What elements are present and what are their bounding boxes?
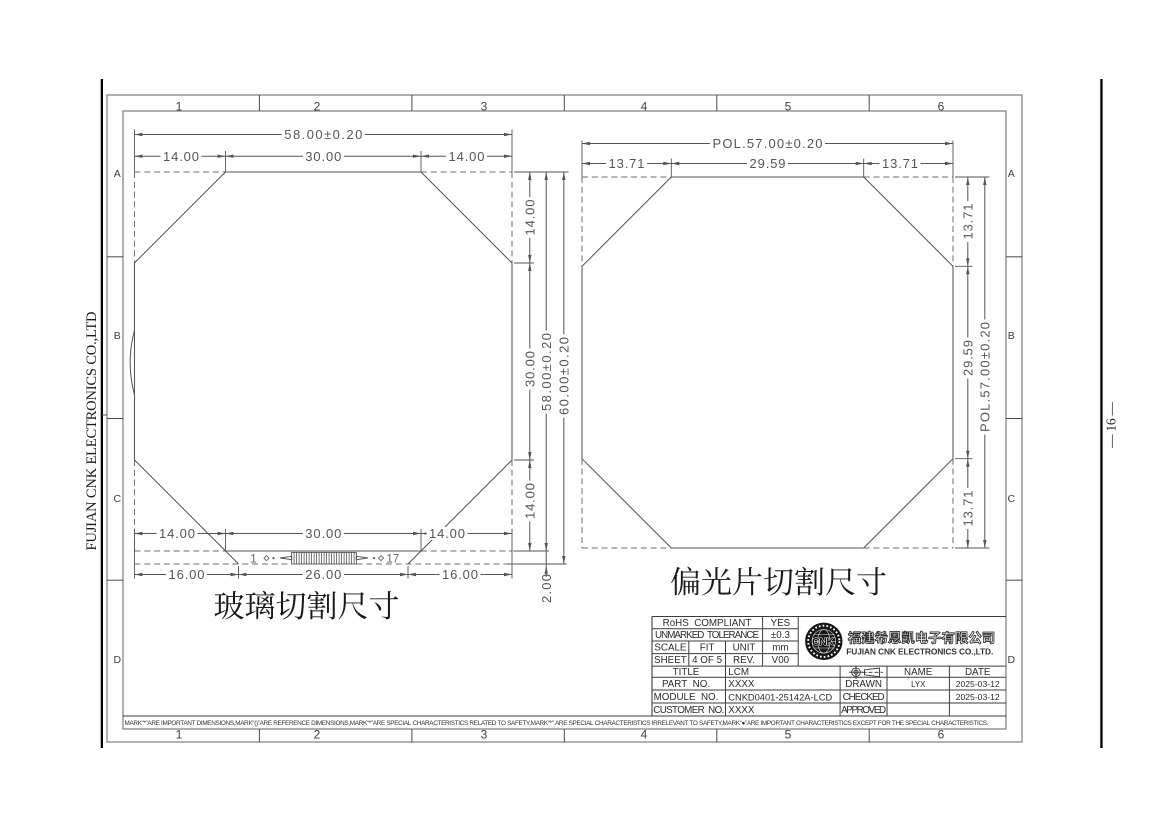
svg-text:FIT: FIT (700, 643, 715, 654)
svg-text:UNIT: UNIT (733, 643, 756, 654)
svg-text:LCM: LCM (728, 667, 749, 678)
svg-text:SCALE: SCALE (654, 643, 687, 654)
svg-text:29.59: 29.59 (750, 156, 786, 171)
svg-text:DRAWN: DRAWN (845, 679, 882, 690)
svg-text:CUSTOMER NO.: CUSTOMER NO. (653, 705, 724, 716)
svg-text:14.00: 14.00 (449, 149, 485, 164)
svg-text:5: 5 (785, 99, 792, 113)
svg-text:FUJIAN CNK ELECTRONICS CO.,LTD: FUJIAN CNK ELECTRONICS CO.,LTD. (846, 646, 993, 656)
svg-text:2025-03-12: 2025-03-12 (956, 692, 1000, 702)
svg-text:NAME: NAME (904, 667, 933, 678)
svg-text:16.00: 16.00 (442, 567, 478, 582)
svg-text:1: 1 (176, 99, 183, 113)
svg-text:D: D (1008, 654, 1016, 666)
svg-text:5: 5 (785, 728, 792, 742)
svg-text:mm: mm (772, 643, 788, 654)
svg-text:CNK: CNK (812, 636, 834, 648)
svg-text:XXXX: XXXX (728, 679, 755, 690)
svg-text:XXXX: XXXX (728, 705, 755, 716)
svg-text:RoHS COMPLIANT: RoHS COMPLIANT (663, 618, 752, 629)
svg-text:FUJIAN CNK ELECTRONICS CO.,LTD: FUJIAN CNK ELECTRONICS CO.,LTD (84, 312, 100, 551)
svg-text:2: 2 (314, 99, 321, 113)
svg-text:UNMARKED TOLERANCE: UNMARKED TOLERANCE (655, 630, 759, 641)
svg-text:B: B (114, 330, 121, 342)
svg-text:±0.3: ±0.3 (771, 630, 791, 641)
svg-text:58.00±0.20: 58.00±0.20 (284, 127, 362, 142)
svg-text:14.00: 14.00 (522, 483, 537, 519)
svg-text:V00: V00 (772, 655, 790, 666)
svg-text:17: 17 (386, 552, 399, 566)
svg-text:PART NO.: PART NO. (662, 679, 710, 690)
svg-text:14.00: 14.00 (522, 200, 537, 236)
svg-text:LYX: LYX (911, 680, 926, 689)
svg-text:13.71: 13.71 (882, 156, 918, 171)
svg-text:— 16 —: — 16 — (1104, 402, 1119, 450)
svg-text:A: A (1008, 168, 1015, 180)
svg-text:CNKD0401-25142A-LCD: CNKD0401-25142A-LCD (728, 693, 832, 703)
svg-text:3: 3 (481, 99, 488, 113)
svg-text:4: 4 (641, 99, 648, 113)
svg-text:58.00±0.20: 58.00±0.20 (539, 333, 554, 411)
svg-text:14.00: 14.00 (429, 526, 465, 541)
svg-text:1: 1 (176, 728, 183, 742)
svg-text:MARK“*”ARE IMPORTANT DIMENSION: MARK“*”ARE IMPORTANT DIMENSIONS,MARK“()”… (125, 720, 989, 727)
svg-text:1: 1 (250, 552, 257, 566)
svg-text:13.71: 13.71 (609, 156, 645, 171)
svg-text:D: D (114, 654, 122, 666)
svg-text:13.71: 13.71 (960, 204, 975, 240)
svg-text:2025-03-12: 2025-03-12 (956, 679, 1000, 689)
svg-text:CHECKED: CHECKED (843, 692, 885, 703)
svg-text:TITLE: TITLE (673, 667, 700, 678)
svg-text:3: 3 (481, 728, 488, 742)
svg-text:POL.57.00±0.20: POL.57.00±0.20 (713, 136, 823, 151)
svg-text:APPROVED: APPROVED (841, 705, 886, 716)
svg-text:SHEET: SHEET (654, 655, 687, 666)
svg-text:14.00: 14.00 (159, 526, 195, 541)
svg-text:C: C (1008, 493, 1016, 505)
svg-text:2: 2 (314, 728, 321, 742)
svg-text:30.00: 30.00 (305, 526, 341, 541)
svg-text:B: B (1008, 330, 1015, 342)
svg-text:30.00: 30.00 (522, 351, 537, 387)
svg-text:16.00: 16.00 (169, 567, 205, 582)
svg-text:60.00±0.20: 60.00±0.20 (556, 337, 571, 415)
svg-text:6: 6 (938, 99, 945, 113)
svg-text:REV.: REV. (733, 655, 755, 666)
svg-text:DATE: DATE (965, 667, 991, 678)
svg-text:A: A (114, 168, 121, 180)
svg-text:14.00: 14.00 (163, 149, 199, 164)
svg-text:26.00: 26.00 (305, 567, 341, 582)
svg-text:6: 6 (938, 728, 945, 742)
svg-text:30.00: 30.00 (305, 149, 341, 164)
svg-text:4 OF 5: 4 OF 5 (692, 655, 722, 666)
svg-text:29.59: 29.59 (960, 340, 975, 376)
svg-text:C: C (114, 493, 122, 505)
svg-text:YES: YES (771, 618, 791, 629)
svg-text:4: 4 (641, 728, 648, 742)
svg-text:2.00: 2.00 (539, 574, 554, 603)
svg-text:13.71: 13.71 (960, 491, 975, 527)
svg-text:MODULE NO.: MODULE NO. (654, 692, 719, 703)
